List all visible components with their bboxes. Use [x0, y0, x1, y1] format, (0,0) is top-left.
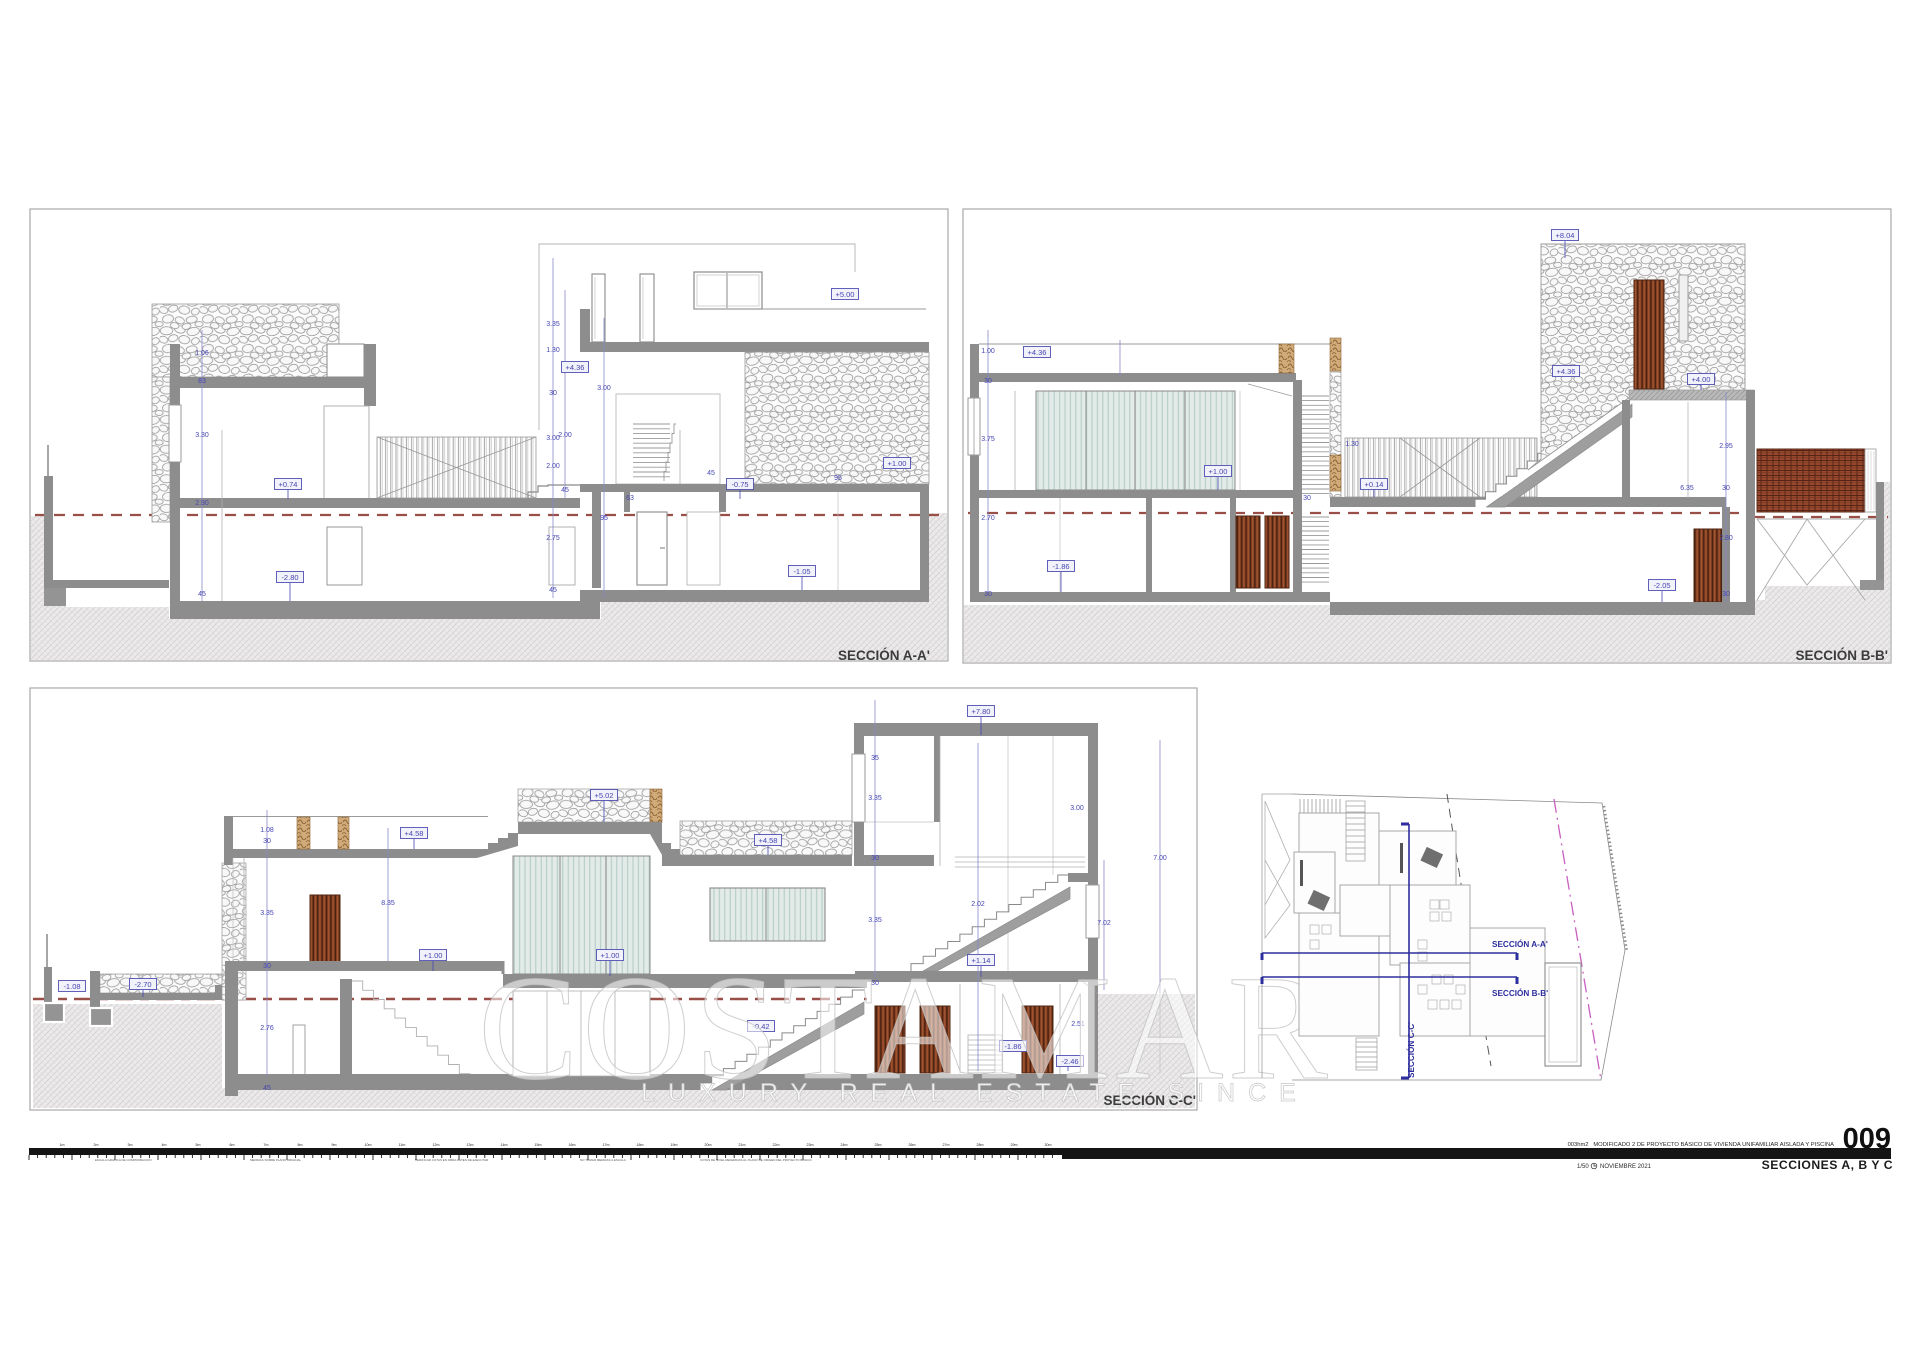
svg-text:1m: 1m — [60, 1143, 65, 1147]
svg-text:009: 009 — [1843, 1123, 1891, 1155]
svg-text:+4.58: +4.58 — [405, 829, 424, 838]
svg-text:NOVIEMBRE 2021: NOVIEMBRE 2021 — [1600, 1164, 1652, 1170]
svg-text:26m: 26m — [909, 1143, 916, 1147]
svg-text:3.35: 3.35 — [868, 795, 882, 802]
svg-text:7m: 7m — [264, 1143, 269, 1147]
svg-text:30: 30 — [263, 963, 271, 970]
svg-text:9m: 9m — [332, 1143, 337, 1147]
svg-text:11m: 11m — [399, 1143, 406, 1147]
svg-text:+4.36: +4.36 — [1557, 367, 1576, 376]
svg-text:3m: 3m — [128, 1143, 133, 1147]
svg-text:29m: 29m — [1011, 1143, 1018, 1147]
svg-text:7.02: 7.02 — [1097, 920, 1111, 927]
svg-text:30: 30 — [1303, 495, 1311, 502]
svg-text:2.75: 2.75 — [546, 535, 560, 542]
svg-text:7.00: 7.00 — [1153, 855, 1167, 862]
svg-text:12m: 12m — [433, 1143, 440, 1147]
svg-text:+7.80: +7.80 — [972, 707, 991, 716]
svg-text:-1.86: -1.86 — [1052, 562, 1069, 571]
svg-text:+0.14: +0.14 — [1365, 480, 1384, 489]
svg-text:VERIFICAR COTAS EN OBRA ANTES: VERIFICAR COTAS EN OBRA ANTES DE EJECUTA… — [415, 1158, 489, 1162]
svg-text:+5.02: +5.02 — [595, 791, 614, 800]
svg-text:45: 45 — [707, 470, 715, 477]
svg-text:2m: 2m — [94, 1143, 99, 1147]
svg-text:+4.36: +4.36 — [566, 363, 585, 372]
svg-text:27m: 27m — [943, 1143, 950, 1147]
svg-text:ESCALA GRAFICA DE COMPROBACION: ESCALA GRAFICA DE COMPROBACION — [95, 1158, 152, 1162]
svg-text:45: 45 — [263, 1085, 271, 1092]
svg-text:35: 35 — [871, 755, 879, 762]
svg-text:+1.00: +1.00 — [424, 951, 443, 960]
svg-text:8.35: 8.35 — [381, 900, 395, 907]
svg-text:30: 30 — [1722, 591, 1730, 598]
svg-text:1.08: 1.08 — [260, 827, 274, 834]
svg-text:95: 95 — [600, 515, 608, 522]
svg-text:3.35: 3.35 — [868, 917, 882, 924]
svg-text:SECCIÓN B-B': SECCIÓN B-B' — [1796, 648, 1888, 663]
svg-text:30: 30 — [263, 838, 271, 845]
svg-text:-2.05: -2.05 — [1653, 581, 1670, 590]
svg-text:LUXURY REAL ESTATE SINCE: LUXURY REAL ESTATE SINCE — [641, 1079, 1309, 1107]
svg-text:15m: 15m — [535, 1143, 542, 1147]
svg-text:+1.00: +1.00 — [888, 459, 907, 468]
svg-text:45: 45 — [198, 591, 206, 598]
svg-text:2.70: 2.70 — [981, 515, 995, 522]
svg-text:4m: 4m — [162, 1143, 167, 1147]
svg-text:21m: 21m — [739, 1143, 746, 1147]
svg-text:10m: 10m — [365, 1143, 372, 1147]
svg-text:003hm2 MODIFICADO 2 DE PROYE: 003hm2 MODIFICADO 2 DE PROYECTO BÁSICO D… — [1568, 1141, 1835, 1148]
svg-text:COTAS DE NIVEL REFERIDAS AL PL: COTAS DE NIVEL REFERIDAS AL PLANO DE ORI… — [700, 1158, 812, 1162]
svg-text:SECCIÓN B-B': SECCIÓN B-B' — [1492, 987, 1548, 998]
svg-text:25m: 25m — [875, 1143, 882, 1147]
svg-text:2.95: 2.95 — [1719, 443, 1733, 450]
svg-text:-1.05: -1.05 — [793, 567, 810, 576]
svg-text:3.75: 3.75 — [981, 436, 995, 443]
svg-text:13m: 13m — [467, 1143, 474, 1147]
svg-text:28m: 28m — [977, 1143, 984, 1147]
svg-text:3.30: 3.30 — [195, 432, 209, 439]
svg-text:45: 45 — [549, 587, 557, 594]
svg-text:24m: 24m — [841, 1143, 848, 1147]
svg-text:6.35: 6.35 — [1680, 485, 1694, 492]
svg-text:2.00: 2.00 — [558, 432, 572, 439]
svg-text:+8.04: +8.04 — [1556, 231, 1575, 240]
svg-text:5m: 5m — [196, 1143, 201, 1147]
svg-text:30: 30 — [549, 390, 557, 397]
svg-text:3.00: 3.00 — [597, 385, 611, 392]
svg-text:3.00: 3.00 — [1070, 805, 1084, 812]
svg-text:1/50: 1/50 — [1577, 1164, 1589, 1170]
svg-text:3.35: 3.35 — [546, 321, 560, 328]
svg-text:SECCIÓN C-C': SECCIÓN C-C' — [1405, 1022, 1416, 1078]
svg-text:1.30: 1.30 — [546, 347, 560, 354]
svg-text:95: 95 — [834, 475, 842, 482]
svg-text:19m: 19m — [671, 1143, 678, 1147]
svg-text:6m: 6m — [230, 1143, 235, 1147]
svg-text:18m: 18m — [637, 1143, 644, 1147]
svg-text:63: 63 — [626, 495, 634, 502]
svg-text:+4.58: +4.58 — [759, 836, 778, 845]
svg-text:1.30: 1.30 — [1345, 441, 1359, 448]
svg-text:3.00: 3.00 — [546, 435, 560, 442]
svg-text:2.90: 2.90 — [195, 500, 209, 507]
svg-text:30: 30 — [1722, 485, 1730, 492]
svg-text:+4.36: +4.36 — [1028, 348, 1047, 357]
svg-text:45: 45 — [561, 487, 569, 494]
svg-text:2.00: 2.00 — [546, 463, 560, 470]
svg-text:NO TOMAR MEDIDAS A ESCALA: NO TOMAR MEDIDAS A ESCALA — [580, 1158, 626, 1162]
svg-text:30: 30 — [871, 855, 879, 862]
svg-text:-2.80: -2.80 — [281, 573, 298, 582]
svg-text:-2.70: -2.70 — [134, 980, 151, 989]
svg-text:2.02: 2.02 — [971, 901, 985, 908]
svg-text:16m: 16m — [569, 1143, 576, 1147]
svg-text:MEDIDAS SOBRE PLANO ORIGINAL: MEDIDAS SOBRE PLANO ORIGINAL — [250, 1158, 302, 1162]
svg-text:+1.00: +1.00 — [1209, 467, 1228, 476]
svg-text:-1.08: -1.08 — [63, 982, 80, 991]
svg-text:30: 30 — [984, 591, 992, 598]
svg-text:23m: 23m — [807, 1143, 814, 1147]
svg-text:2.80: 2.80 — [1719, 535, 1733, 542]
svg-text:1.00: 1.00 — [981, 348, 995, 355]
svg-text:83: 83 — [198, 378, 206, 385]
svg-text:1.06: 1.06 — [195, 350, 209, 357]
svg-text:22m: 22m — [773, 1143, 780, 1147]
svg-text:30: 30 — [984, 378, 992, 385]
svg-text:2.76: 2.76 — [260, 1025, 274, 1032]
svg-text:-0.75: -0.75 — [731, 480, 748, 489]
svg-text:+4.00: +4.00 — [1692, 375, 1711, 384]
svg-text:20m: 20m — [705, 1143, 712, 1147]
svg-text:SECCIONES A, B Y C: SECCIONES A, B Y C — [1762, 1158, 1893, 1172]
svg-text:8m: 8m — [298, 1143, 303, 1147]
svg-text:SECCIÓN A-A': SECCIÓN A-A' — [838, 648, 930, 663]
svg-text:SECCIÓN A-A': SECCIÓN A-A' — [1492, 938, 1548, 949]
svg-text:14m: 14m — [501, 1143, 508, 1147]
svg-text:17m: 17m — [603, 1143, 610, 1147]
svg-text:+5.00: +5.00 — [836, 290, 855, 299]
svg-text:+0.74: +0.74 — [279, 480, 298, 489]
svg-text:3.35: 3.35 — [260, 910, 274, 917]
svg-text:30m: 30m — [1045, 1143, 1052, 1147]
